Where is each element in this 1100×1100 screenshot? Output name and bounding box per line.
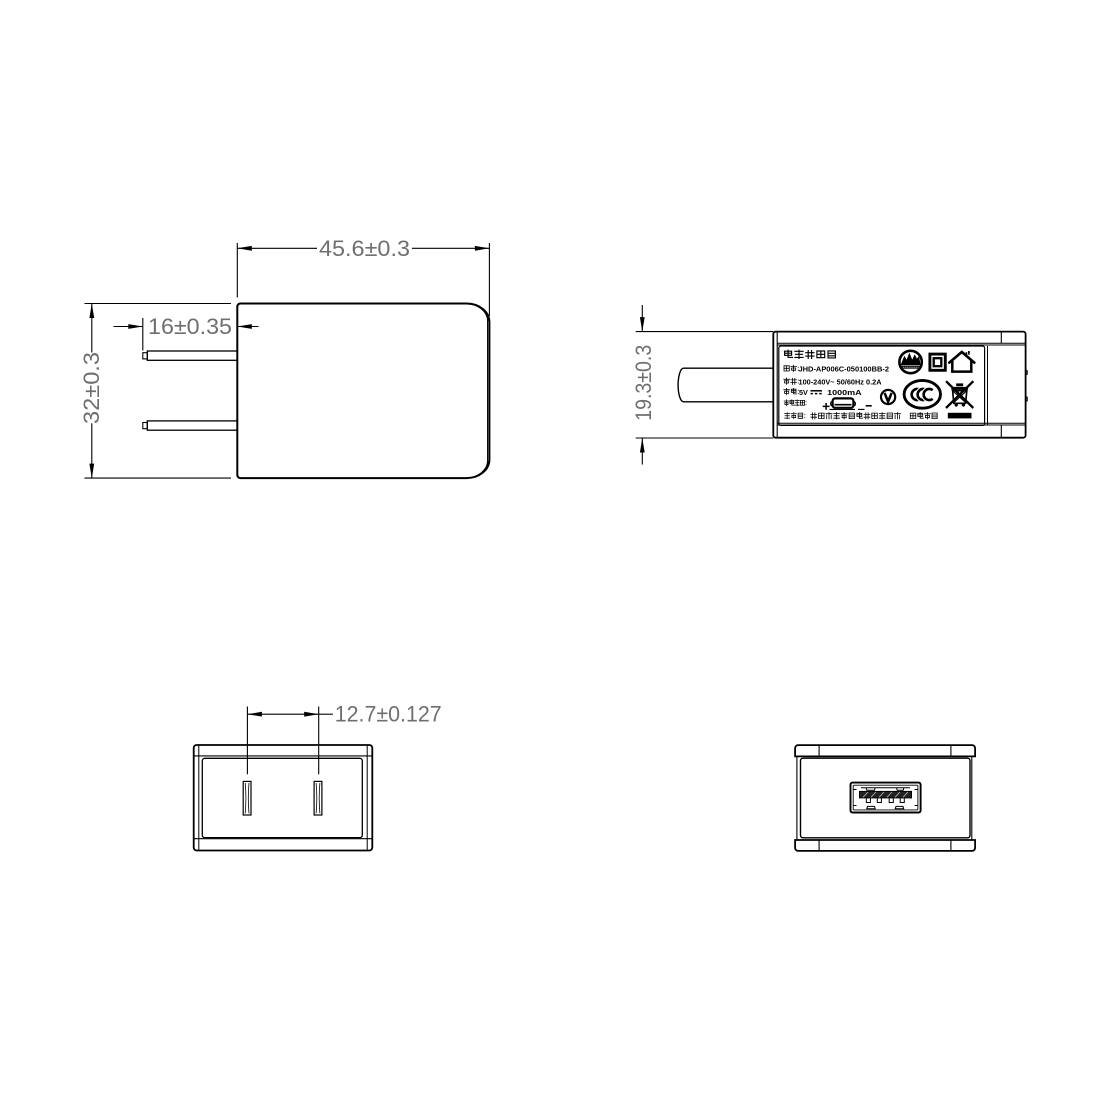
svg-text:1000mA: 1000mA xyxy=(827,388,862,397)
svg-text:16±0.35: 16±0.35 xyxy=(148,314,232,339)
svg-text:32±0.3: 32±0.3 xyxy=(79,352,104,424)
svg-text:5V: 5V xyxy=(799,388,808,397)
svg-text:JHD-AP006C-050100BB-2: JHD-AP006C-050100BB-2 xyxy=(799,365,890,374)
svg-text:100-240V~ 50/60Hz 0.2A: 100-240V~ 50/60Hz 0.2A xyxy=(799,377,882,386)
svg-text:12.7±0.127: 12.7±0.127 xyxy=(335,702,442,727)
svg-text:19.3±0.3: 19.3±0.3 xyxy=(631,345,656,421)
svg-text:45.6±0.3: 45.6±0.3 xyxy=(319,236,410,261)
